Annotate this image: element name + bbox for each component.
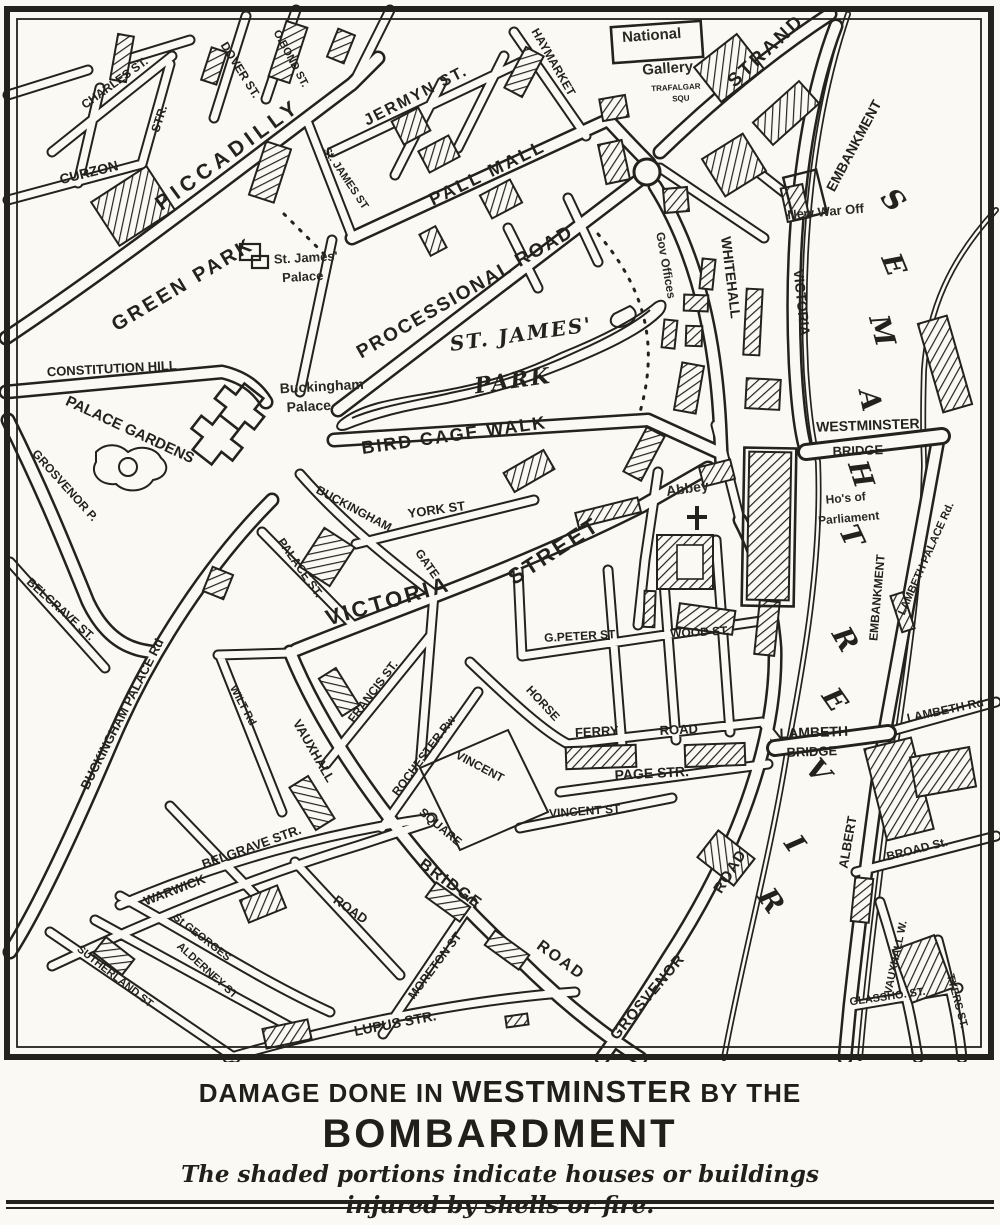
- caption-legend-line1: The shaded portions indicate houses or b…: [0, 1161, 1000, 1188]
- abbey-courtyard: [677, 545, 703, 579]
- caption-title-emphasis: WESTMINSTER: [452, 1074, 692, 1109]
- map-label-lambeth: LAMBETH: [779, 723, 848, 741]
- westminster-bombardment-map: CHARLES ST.STR.CURZONDOVER ST.O.BOND ST.…: [0, 0, 1000, 1062]
- bottom-double-rule: [6, 1200, 994, 1209]
- map-label-bridge: BRIDGE: [786, 743, 837, 760]
- caption-title-line2: BOMBARDMENT: [0, 1112, 1000, 1157]
- caption-title-line1: DAMAGE DONE IN WESTMINSTER BY THE: [0, 1074, 1000, 1110]
- map-label-squ: SQU: [672, 94, 690, 104]
- map-label-ferry: FERRY: [575, 723, 620, 740]
- caption-block: DAMAGE DONE IN WESTMINSTER BY THE BOMBAR…: [0, 1062, 1000, 1219]
- caption-title-suffix: BY THE: [692, 1078, 801, 1108]
- map-label-palace: Palace: [282, 268, 324, 285]
- map-label-palace: Palace: [286, 397, 331, 415]
- map-label-road: ROAD: [659, 721, 698, 738]
- caption-title-prefix: DAMAGE DONE IN: [199, 1078, 452, 1108]
- map-label-bridge: BRIDGE: [832, 442, 883, 459]
- trafalgar-square-circle: [634, 159, 660, 185]
- map-page: { "colors": {"ink": "#23221c", "paper": …: [0, 0, 1000, 1225]
- map-label-gallery: Gallery: [642, 58, 695, 79]
